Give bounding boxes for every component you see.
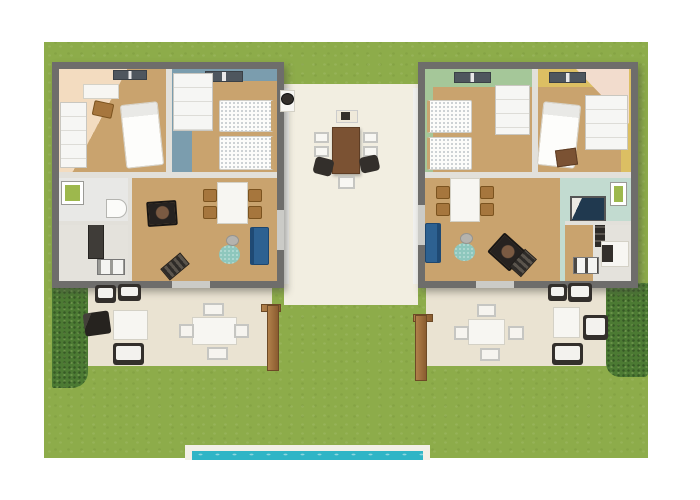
lounge-armchair	[113, 343, 144, 365]
dining-chair	[480, 186, 494, 199]
wardrobe	[173, 73, 213, 131]
outdoor-chair	[179, 324, 194, 338]
lounge-armchair	[118, 284, 141, 301]
outdoor-chair	[454, 326, 469, 340]
wardrobe	[495, 85, 530, 135]
right-hedge	[606, 283, 648, 377]
outdoor-chair	[234, 324, 249, 338]
shower	[570, 196, 606, 222]
left-unit	[52, 62, 284, 288]
lounge-armchair	[568, 283, 592, 302]
cabinet	[585, 95, 628, 150]
desk	[83, 84, 119, 99]
bedroom-divider-wall	[166, 69, 172, 172]
dining-table	[450, 178, 480, 222]
kitchen-counter	[88, 221, 104, 259]
armchair-cushion	[551, 287, 564, 296]
courtyard-chair	[363, 132, 378, 143]
armchair-cushion	[571, 286, 589, 297]
dining-chair	[480, 203, 494, 216]
outdoor-barbecue	[83, 310, 112, 336]
lounge-armchair	[552, 343, 583, 365]
courtyard-left-wall-face	[284, 88, 289, 284]
coffee-table	[113, 310, 148, 340]
coffee-table	[553, 307, 580, 338]
toilet	[106, 199, 127, 218]
pergola-post	[267, 305, 279, 371]
outdoor-chair	[508, 326, 524, 340]
swimming-pool	[192, 451, 423, 460]
armchair-cushion	[116, 346, 141, 360]
hall-wall	[560, 178, 565, 281]
wardrobe	[60, 102, 87, 168]
skylight	[549, 72, 586, 83]
twin-bed	[219, 136, 274, 170]
rug	[219, 245, 240, 264]
pergola-post	[415, 315, 427, 381]
courtyard-chair	[314, 132, 329, 143]
armchair-cushion	[555, 346, 580, 360]
bath-kitchen-wall	[59, 221, 128, 225]
twin-bed	[427, 137, 472, 170]
bath-kitchen-wall	[565, 221, 631, 225]
double-bed	[120, 101, 164, 169]
skylight	[113, 70, 147, 80]
lounge-armchair	[95, 285, 116, 303]
dining-chair	[436, 203, 450, 216]
dining-chair	[248, 189, 262, 202]
dressing-desk	[555, 148, 578, 168]
armchair-cushion	[98, 288, 113, 298]
kitchen-appliance	[602, 245, 613, 262]
courtyard-table	[332, 127, 360, 174]
lounge-armchair	[583, 315, 608, 340]
wood-stove	[146, 200, 178, 227]
outdoor-chair	[207, 347, 228, 360]
outdoor-dining-table	[192, 317, 237, 345]
side-table	[226, 235, 239, 246]
dining-chair	[203, 189, 217, 202]
door-opening	[476, 281, 514, 288]
door-opening	[418, 205, 425, 245]
courtyard-chair	[314, 146, 329, 157]
right-unit	[418, 62, 638, 288]
armchair-cushion	[121, 287, 138, 296]
lounge-armchair	[548, 284, 567, 301]
twin-bed	[219, 100, 274, 132]
twin-bed	[427, 100, 472, 133]
courtyard-chair	[338, 176, 355, 189]
skylight	[454, 72, 491, 83]
kitchen-sink	[573, 257, 599, 274]
kitchen-sink	[97, 259, 125, 275]
barbecue-grill	[281, 93, 294, 105]
side-table	[460, 233, 473, 244]
left-hedge	[52, 285, 88, 388]
sofa	[425, 223, 441, 263]
door-opening	[277, 210, 284, 250]
sofa	[250, 227, 269, 265]
dining-chair	[203, 206, 217, 219]
dining-chair	[248, 206, 262, 219]
armchair-cushion	[586, 318, 605, 335]
outdoor-dining-table	[468, 319, 505, 345]
console-item	[341, 112, 350, 120]
dining-chair	[436, 186, 450, 199]
door-opening	[172, 281, 210, 288]
bathroom-mirror	[611, 183, 626, 205]
bathroom-mirror	[62, 182, 83, 204]
dining-table	[217, 182, 248, 224]
rug	[454, 243, 475, 261]
outdoor-chair	[477, 304, 496, 317]
outdoor-chair	[203, 303, 224, 316]
floor-plan-render	[0, 0, 700, 500]
outdoor-chair	[480, 348, 500, 361]
